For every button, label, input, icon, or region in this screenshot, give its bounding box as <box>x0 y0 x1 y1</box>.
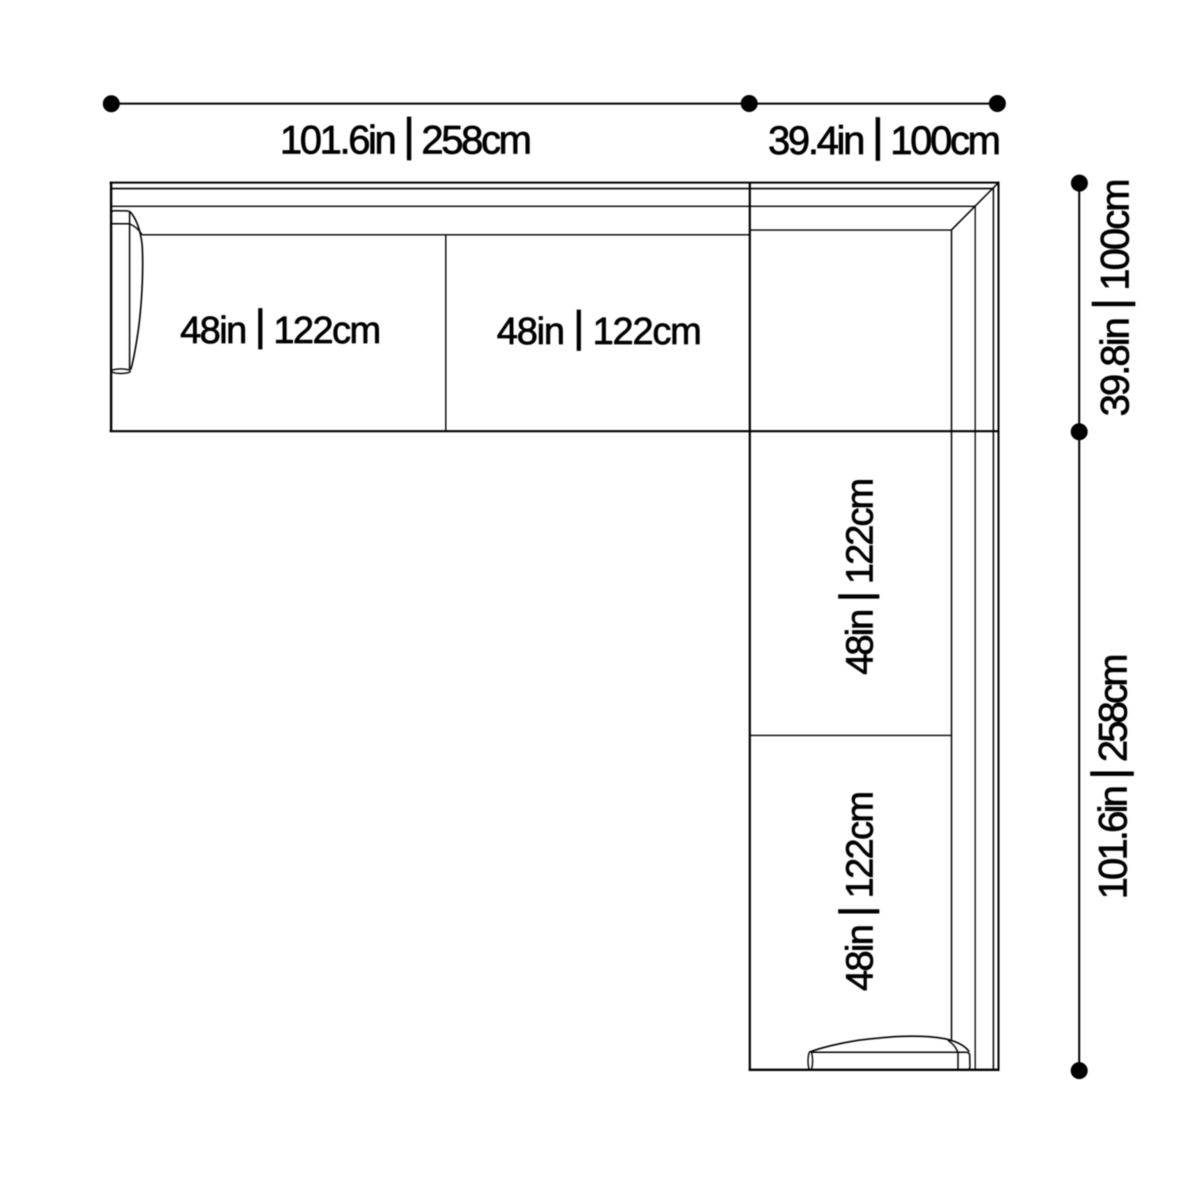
svg-text:48in | 122cm: 48in | 122cm <box>180 301 381 352</box>
svg-text:48in | 122cm: 48in | 122cm <box>497 303 702 354</box>
